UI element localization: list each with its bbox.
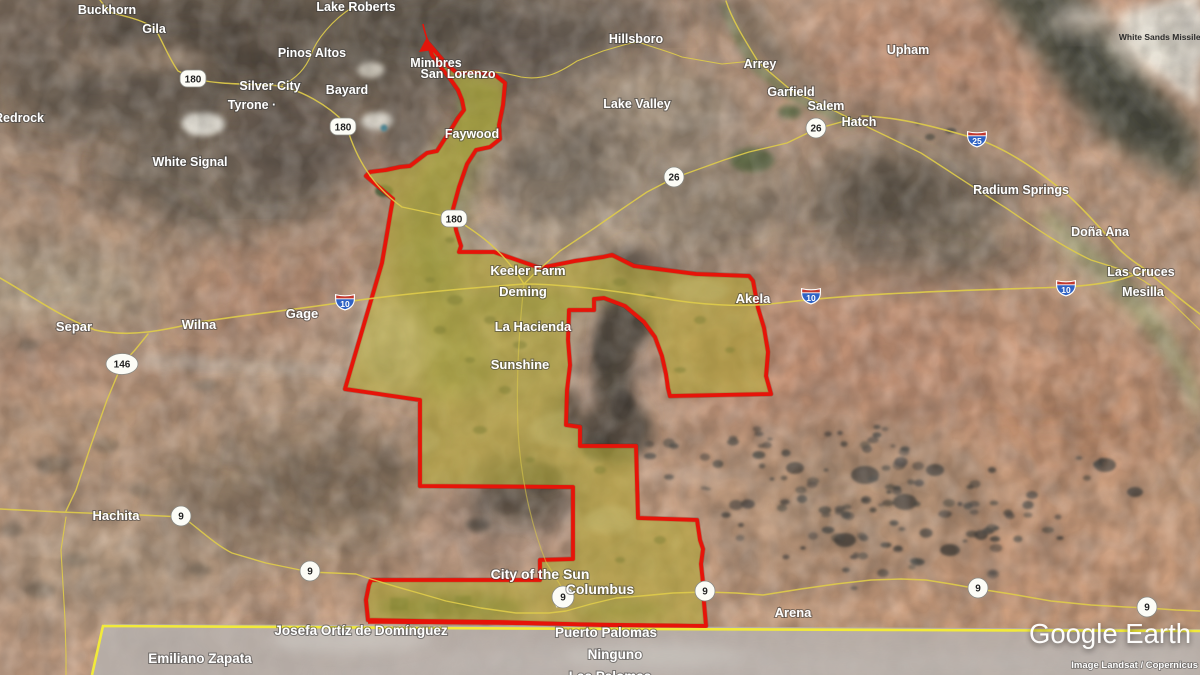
svg-text:26: 26	[810, 124, 822, 135]
svg-text:Hatch: Hatch	[842, 115, 877, 129]
svg-text:City of the Sun: City of the Sun	[491, 566, 590, 582]
svg-text:Lake Valley: Lake Valley	[603, 97, 670, 111]
svg-text:Josefa Ortíz de Domínguez: Josefa Ortíz de Domínguez	[274, 623, 448, 638]
svg-text:Redrock: Redrock	[0, 111, 44, 125]
svg-text:9: 9	[307, 567, 313, 578]
svg-text:180: 180	[185, 75, 202, 86]
svg-text:Radium Springs: Radium Springs	[973, 183, 1069, 197]
svg-text:Hachita: Hachita	[93, 508, 141, 523]
svg-text:White Signal: White Signal	[153, 155, 228, 169]
svg-text:180: 180	[335, 123, 352, 134]
svg-text:Ninguno: Ninguno	[588, 647, 643, 662]
svg-text:Puerto Palomas: Puerto Palomas	[555, 625, 657, 640]
svg-text:146: 146	[114, 360, 131, 371]
svg-text:Tyrone ·: Tyrone ·	[228, 98, 276, 112]
svg-text:Hillsboro: Hillsboro	[609, 32, 664, 46]
svg-text:9: 9	[1144, 603, 1150, 614]
svg-text:10: 10	[1061, 285, 1071, 295]
svg-text:25: 25	[972, 136, 982, 146]
svg-text:Pinos Altos: Pinos Altos	[278, 46, 346, 60]
svg-text:Lake Roberts: Lake Roberts	[316, 0, 395, 14]
svg-text:Mesilla: Mesilla	[1122, 285, 1165, 299]
svg-text:Deming: Deming	[499, 284, 547, 299]
svg-text:10: 10	[806, 293, 816, 303]
svg-text:Akela: Akela	[736, 291, 771, 306]
svg-text:9: 9	[975, 584, 981, 595]
svg-text:Doña Ana: Doña Ana	[1071, 225, 1130, 239]
svg-text:Arena: Arena	[775, 605, 813, 620]
svg-text:180: 180	[446, 215, 463, 226]
svg-text:26: 26	[668, 173, 680, 184]
svg-text:Keeler Farm: Keeler Farm	[490, 263, 565, 278]
svg-text:Sunshine: Sunshine	[491, 357, 550, 372]
svg-text:Garfield: Garfield	[767, 85, 814, 99]
svg-text:Gila: Gila	[142, 22, 167, 36]
svg-text:Wilna: Wilna	[182, 317, 217, 332]
svg-text:Las Cruces: Las Cruces	[1107, 265, 1174, 279]
svg-text:Silver City: Silver City	[239, 79, 300, 93]
svg-text:Salem: Salem	[808, 99, 845, 113]
svg-text:La Hacienda: La Hacienda	[495, 319, 572, 334]
svg-text:Image Landsat / Copernicus: Image Landsat / Copernicus	[1071, 660, 1198, 671]
svg-text:Bayard: Bayard	[326, 83, 368, 97]
svg-text:Las Palomas: Las Palomas	[569, 669, 652, 675]
svg-text:White Sands Missile R: White Sands Missile R	[1119, 32, 1200, 42]
svg-text:Faywood: Faywood	[445, 127, 499, 141]
svg-text:San Lorenzo: San Lorenzo	[420, 67, 495, 81]
svg-text:Arrey: Arrey	[744, 57, 777, 71]
svg-text:Emiliano Zapata: Emiliano Zapata	[148, 651, 252, 666]
svg-text:Upham: Upham	[887, 43, 929, 57]
svg-text:10: 10	[340, 299, 350, 309]
svg-text:Google Earth: Google Earth	[1029, 618, 1191, 649]
svg-text:9: 9	[178, 512, 184, 523]
svg-text:Separ: Separ	[56, 319, 92, 334]
svg-text:Buckhorn: Buckhorn	[78, 3, 136, 17]
svg-text:Columbus: Columbus	[566, 581, 635, 597]
svg-text:9: 9	[702, 587, 708, 598]
svg-text:Gage: Gage	[286, 306, 319, 321]
